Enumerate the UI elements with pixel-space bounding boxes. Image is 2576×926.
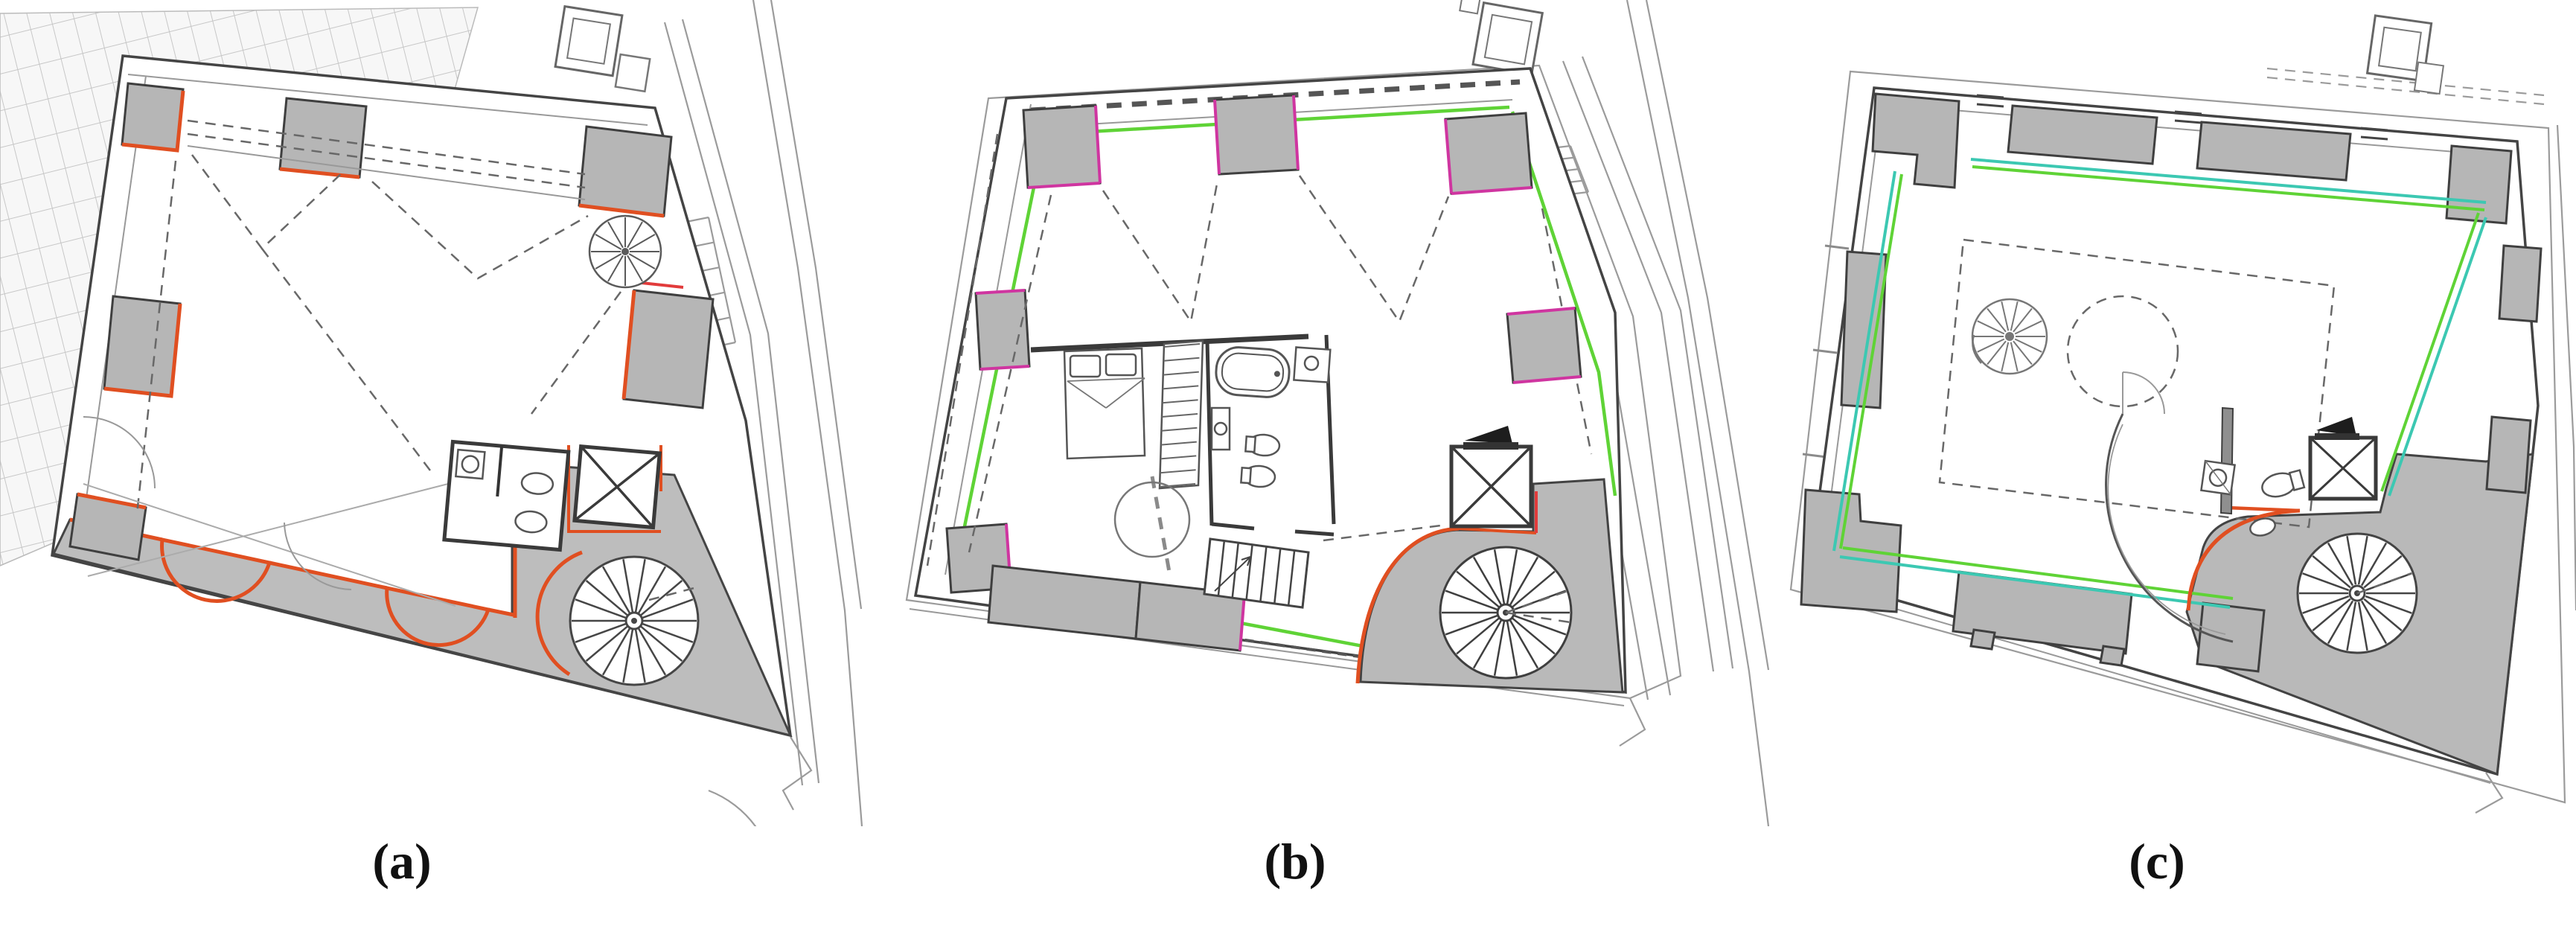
spiral-staircase [2298,534,2417,653]
straight-stair [1204,539,1308,607]
bathroom [444,441,569,549]
chimney [554,7,656,92]
corner-sink [2201,461,2234,494]
bathtub [1215,346,1291,399]
bed [1064,348,1145,459]
small-spiral-stair [1972,299,2047,374]
sink-counter [1294,348,1330,383]
elevator-shaft [575,447,659,528]
ladder-stair [1160,341,1203,488]
panel-label-b: (b) [1213,832,1377,891]
floor-plan-c [1786,0,2576,826]
panel-label-c: (c) [2075,832,2239,891]
chimney [2366,16,2449,94]
figure: (a) (b) (c) [0,0,2576,926]
spiral-staircase [1440,547,1571,678]
spiral-staircase [570,557,700,685]
small-spiral-stair [589,216,661,287]
chimney [1451,0,1544,74]
floor-plan-a [0,0,863,826]
panel-label-a: (a) [320,832,484,891]
floor-plan-b [878,0,1801,826]
